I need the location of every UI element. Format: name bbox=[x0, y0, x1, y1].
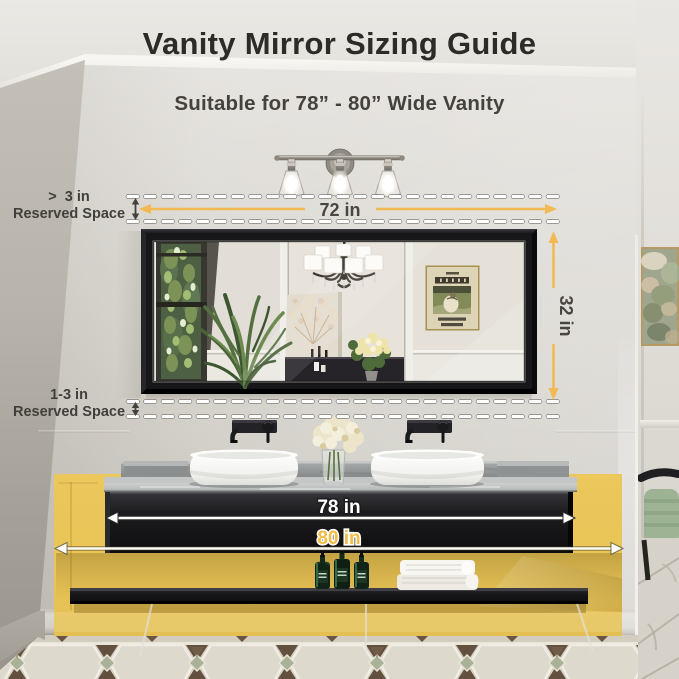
svg-text:32 in: 32 in bbox=[556, 295, 576, 336]
svg-text:72 in: 72 in bbox=[319, 200, 360, 220]
svg-text:78 in: 78 in bbox=[317, 497, 360, 518]
svg-text:80 in: 80 in bbox=[317, 528, 360, 549]
